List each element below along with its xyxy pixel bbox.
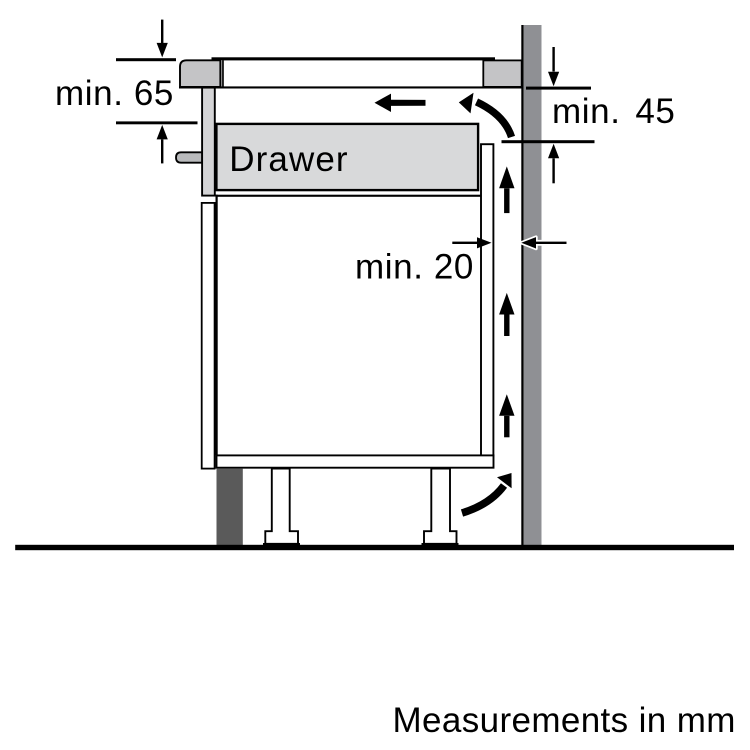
svg-text:min. 45: min. 45	[552, 92, 675, 131]
svg-text:min. 65: min. 65	[55, 74, 174, 113]
svg-text:Drawer: Drawer	[229, 140, 348, 179]
svg-text:Measurements in mm: Measurements in mm	[393, 701, 736, 740]
svg-text:min. 20: min. 20	[355, 247, 474, 286]
